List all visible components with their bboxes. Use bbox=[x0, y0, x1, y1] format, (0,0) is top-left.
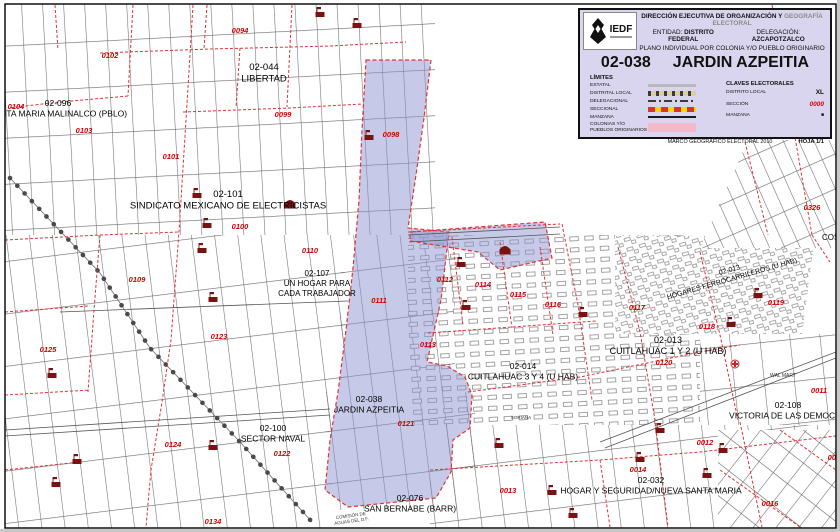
section-label-0011: 0011 bbox=[811, 386, 827, 395]
manzana-value: ■ bbox=[821, 112, 824, 118]
section-label-0121: 0121 bbox=[398, 419, 415, 428]
iedf-logo-subline bbox=[610, 36, 633, 38]
section-label-0013: 0013 bbox=[500, 486, 518, 495]
distrital-dotted-symbol bbox=[648, 91, 696, 96]
colonia-pink-symbol bbox=[648, 123, 696, 132]
clave-row-seccion: SECCIÓN 0000 bbox=[726, 101, 824, 108]
legend-header-line2: ENTIDAD: DISTRITO FEDERAL DELEGACIÓN: AZ… bbox=[637, 29, 827, 43]
entity: ENTIDAD: DISTRITO FEDERAL bbox=[637, 29, 729, 43]
section-label-0125: 0125 bbox=[40, 345, 58, 354]
section-label-0114: 0114 bbox=[475, 280, 492, 289]
section-label-0012: 0012 bbox=[697, 438, 715, 447]
section-label-0123: 0123 bbox=[211, 332, 229, 341]
section-label-0014: 0014 bbox=[630, 465, 648, 474]
seccion-value: 0000 bbox=[810, 101, 824, 108]
medical-cross-icon bbox=[731, 360, 739, 368]
plano-title: 02-038 JARDIN AZPEITIA bbox=[580, 54, 830, 72]
iedf-eagle-icon bbox=[588, 17, 608, 45]
section-label-0104: 0104 bbox=[8, 102, 26, 111]
iedf-logo-text: IEDF bbox=[610, 24, 633, 35]
legend-header-line3: PLANO INDIVIDUAL POR COLONIA Y/O PUEBLO … bbox=[637, 45, 827, 52]
seccional-dashed-symbol bbox=[648, 107, 696, 112]
legend-panel: IEDF DIRECCIÓN EJECUTIVA DE ORGANIZACIÓN… bbox=[578, 8, 832, 139]
estatal-line-symbol bbox=[648, 84, 696, 87]
delegacional-dashdot-symbol bbox=[648, 100, 696, 102]
limit-row-estatal: ESTATAL bbox=[590, 83, 712, 88]
manzana-line-symbol bbox=[648, 116, 696, 118]
hoja-indicator: HOJA 1/1 bbox=[798, 139, 824, 145]
section-label-0103: 0103 bbox=[76, 126, 94, 135]
poi-label: SORIANA bbox=[511, 415, 531, 420]
section-label-0100: 0100 bbox=[232, 222, 250, 231]
section-label-0102: 0102 bbox=[102, 51, 120, 60]
legend-header-line1: DIRECCIÓN EJECUTIVA DE ORGANIZACIÓN Y GE… bbox=[637, 13, 827, 27]
poi-label: WAL MART bbox=[770, 373, 796, 379]
section-label-0101: 0101 bbox=[163, 152, 180, 161]
colonia-code: 02-038 bbox=[601, 54, 651, 72]
marco-geografico-text: MARCO GEOGRÁFICO ELECTORAL 2010 bbox=[668, 139, 773, 145]
section-label-0118: 0118 bbox=[699, 322, 716, 331]
section-label-0111: 0111 bbox=[371, 296, 387, 305]
section-label-0134: 0134 bbox=[205, 517, 223, 526]
claves-legend: CLAVES ELECTORALES DISTRITO LOCAL XL SEC… bbox=[712, 75, 824, 136]
clave-row-manzana: MANZANA ■ bbox=[726, 112, 824, 118]
header-line1-black: DIRECCIÓN EJECUTIVA DE ORGANIZACIÓN Y bbox=[641, 13, 782, 20]
section-label-0099: 0099 bbox=[275, 110, 293, 119]
section-label-0117: 0117 bbox=[629, 303, 646, 312]
section-label-0120: 0120 bbox=[656, 358, 674, 367]
limit-row-distrital: DISTRITAL LOCAL bbox=[590, 91, 712, 96]
limit-row-colonias: COLONIAS Y/O PUEBLOS ORIGINARIOS bbox=[590, 122, 712, 133]
section-label-0113: 0113 bbox=[420, 340, 437, 349]
section-label-0110: 0110 bbox=[302, 246, 319, 255]
claves-heading: CLAVES ELECTORALES bbox=[726, 81, 824, 87]
iedf-logo: IEDF bbox=[583, 12, 637, 50]
limits-heading: LÍMITES bbox=[590, 75, 712, 81]
section-label-0098: 0098 bbox=[383, 130, 401, 139]
section-label-0124: 0124 bbox=[165, 440, 183, 449]
section-label-0122: 0122 bbox=[274, 449, 292, 458]
distrito-local-value: XL bbox=[816, 89, 824, 96]
limit-row-manzana: MANZANA bbox=[590, 115, 712, 120]
limit-row-seccional: SECCIONAL bbox=[590, 107, 712, 112]
section-label-0016: 0016 bbox=[762, 499, 780, 508]
section-label-0112: 0112 bbox=[437, 275, 454, 284]
section-label-0116: 0116 bbox=[545, 300, 562, 309]
colonia-name: JARDIN AZPEITIA bbox=[673, 54, 809, 72]
plano-electoral-page: 02-044LIBERTAD02-096SANTA MARIA MALINALC… bbox=[0, 0, 840, 532]
section-label-0326: 0326 bbox=[804, 203, 822, 212]
section-label-0119: 0119 bbox=[768, 298, 785, 307]
delegation: DELEGACIÓN: AZCAPOTZALCO bbox=[729, 29, 827, 43]
section-label-0094: 0094 bbox=[232, 26, 250, 35]
limit-row-delegacional: DELEGACIONAL bbox=[590, 99, 712, 104]
limits-legend: LÍMITES ESTATAL DISTRITAL LOCAL DELEGACI… bbox=[590, 75, 712, 136]
section-label-0109: 0109 bbox=[129, 275, 147, 284]
clave-row-distrito: DISTRITO LOCAL XL bbox=[726, 89, 824, 96]
legend-footer: MARCO GEOGRÁFICO ELECTORAL 2010 HOJA 1/1 bbox=[580, 136, 830, 145]
section-label-0115: 0115 bbox=[510, 290, 527, 299]
